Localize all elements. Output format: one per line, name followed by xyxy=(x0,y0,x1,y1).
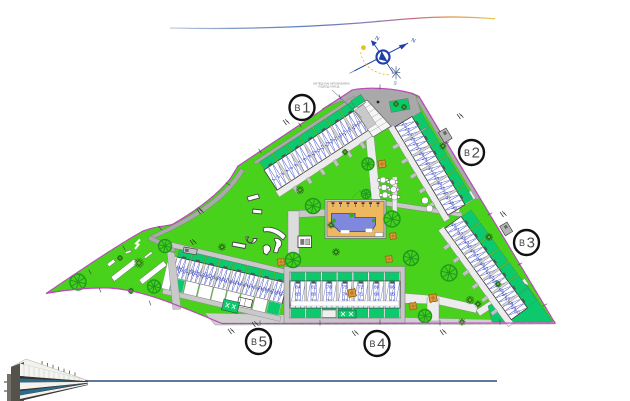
svg-text:83: 83 xyxy=(295,292,301,297)
svg-text:B: B xyxy=(464,148,470,158)
svg-text:75: 75 xyxy=(342,285,348,290)
svg-text:B: B xyxy=(519,238,525,248)
svg-text:84: 84 xyxy=(295,285,301,290)
svg-text:3: 3 xyxy=(527,235,535,252)
svg-text:2: 2 xyxy=(472,145,480,162)
svg-text:4: 4 xyxy=(377,336,385,353)
svg-text:B: B xyxy=(251,337,257,347)
svg-text:1: 1 xyxy=(302,100,310,117)
svg-text:80: 80 xyxy=(311,292,317,297)
svg-text:81: 81 xyxy=(311,285,317,290)
svg-text:N: N xyxy=(410,38,416,45)
svg-text:72: 72 xyxy=(358,285,364,290)
svg-text:78: 78 xyxy=(327,285,333,290)
svg-text:68: 68 xyxy=(374,292,380,297)
svg-text:74: 74 xyxy=(342,292,348,297)
svg-text:71: 71 xyxy=(358,292,364,297)
svg-text:S: S xyxy=(393,80,398,86)
svg-text:N: N xyxy=(374,35,380,42)
svg-text:77: 77 xyxy=(327,292,333,297)
svg-text:66: 66 xyxy=(390,285,396,290)
svg-text:B: B xyxy=(294,103,300,113)
svg-text:ПОДХОД И ВХОД: ПОДХОД И ВХОД xyxy=(318,85,339,89)
svg-text:69: 69 xyxy=(374,285,380,290)
svg-text:65: 65 xyxy=(390,292,396,297)
svg-text:5: 5 xyxy=(259,334,267,351)
svg-text:B: B xyxy=(369,339,375,349)
